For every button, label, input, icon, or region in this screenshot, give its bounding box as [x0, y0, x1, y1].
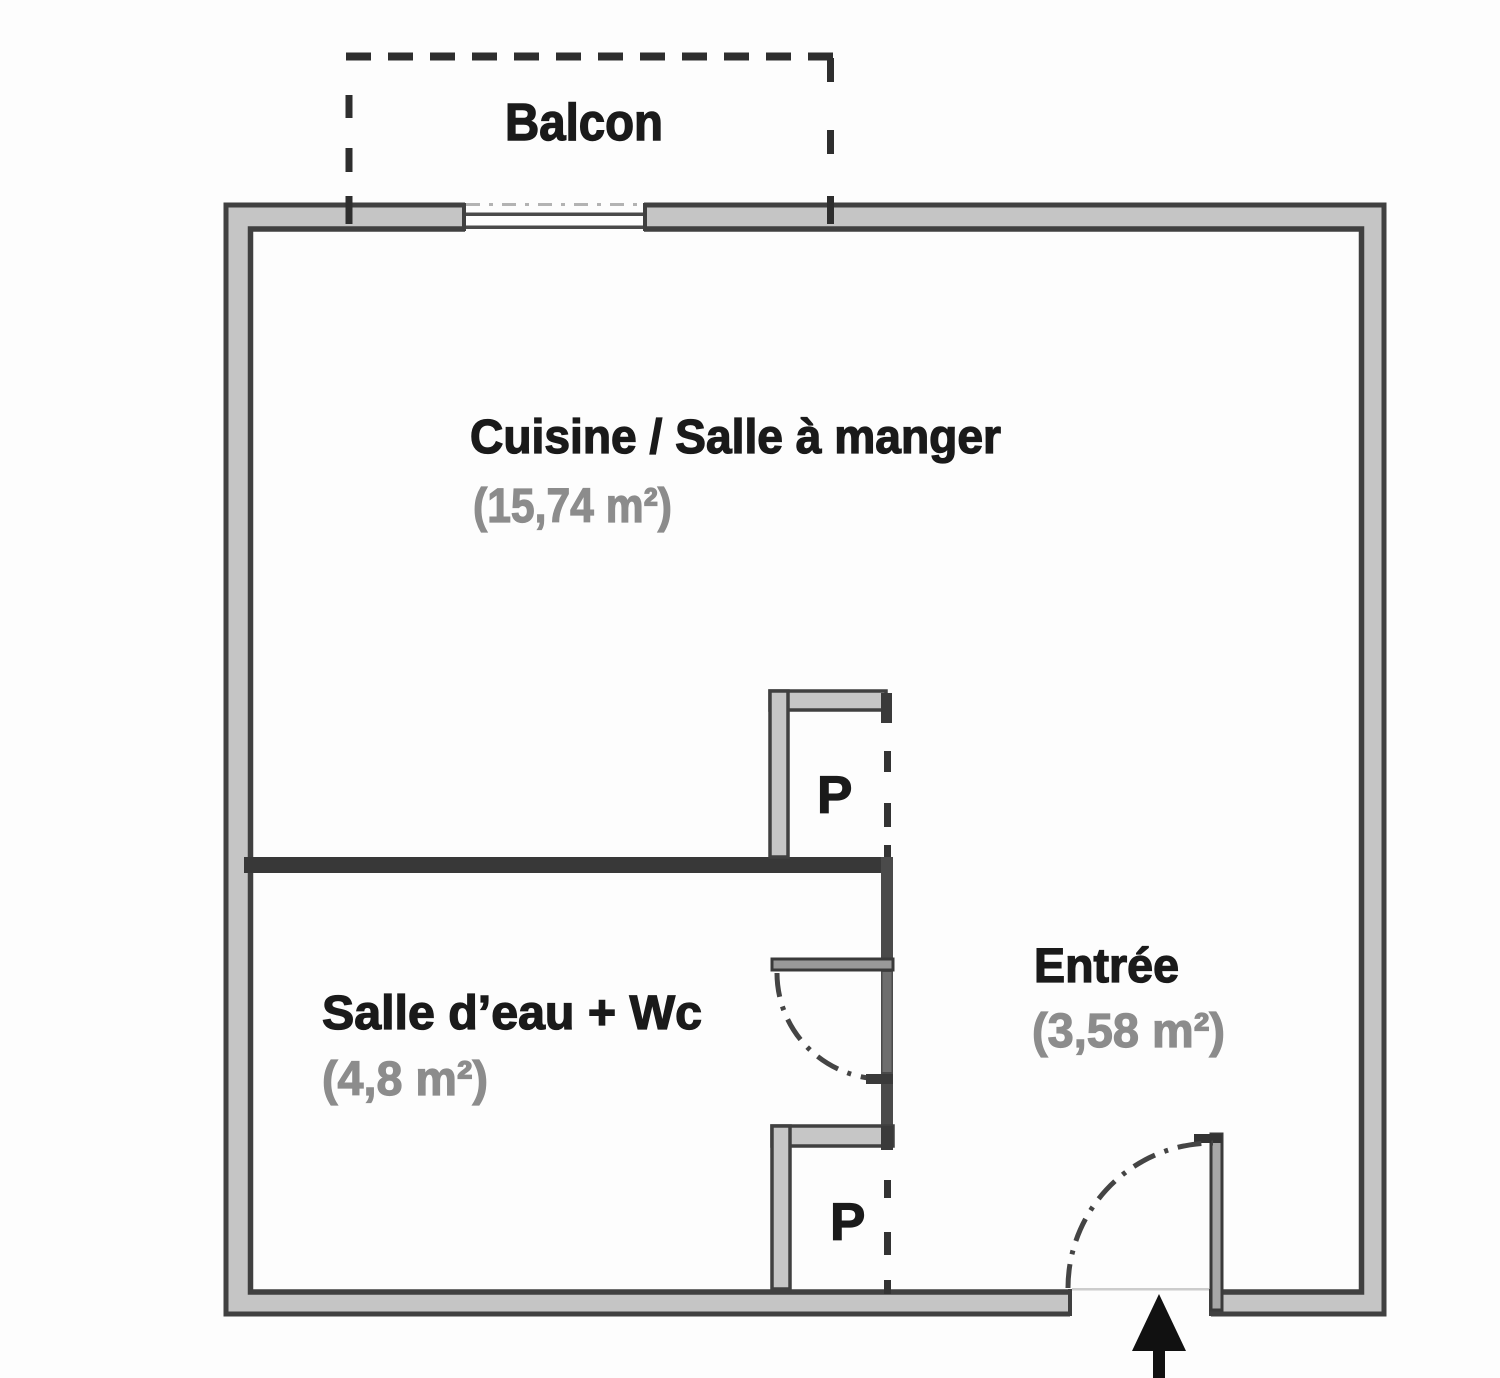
svg-text:P: P: [817, 766, 852, 825]
svg-text:P: P: [830, 1193, 865, 1252]
svg-text:Salle d’eau + Wc: Salle d’eau + Wc: [322, 987, 702, 1040]
svg-text:Balcon: Balcon: [505, 94, 663, 152]
svg-text:Entrée: Entrée: [1034, 940, 1179, 993]
svg-text:(4,8 m²): (4,8 m²): [322, 1053, 488, 1106]
svg-text:(15,74 m²): (15,74 m²): [473, 480, 672, 533]
svg-text:Cuisine / Salle à manger: Cuisine / Salle à manger: [470, 411, 1001, 464]
svg-text:(3,58 m²): (3,58 m²): [1032, 1005, 1225, 1058]
